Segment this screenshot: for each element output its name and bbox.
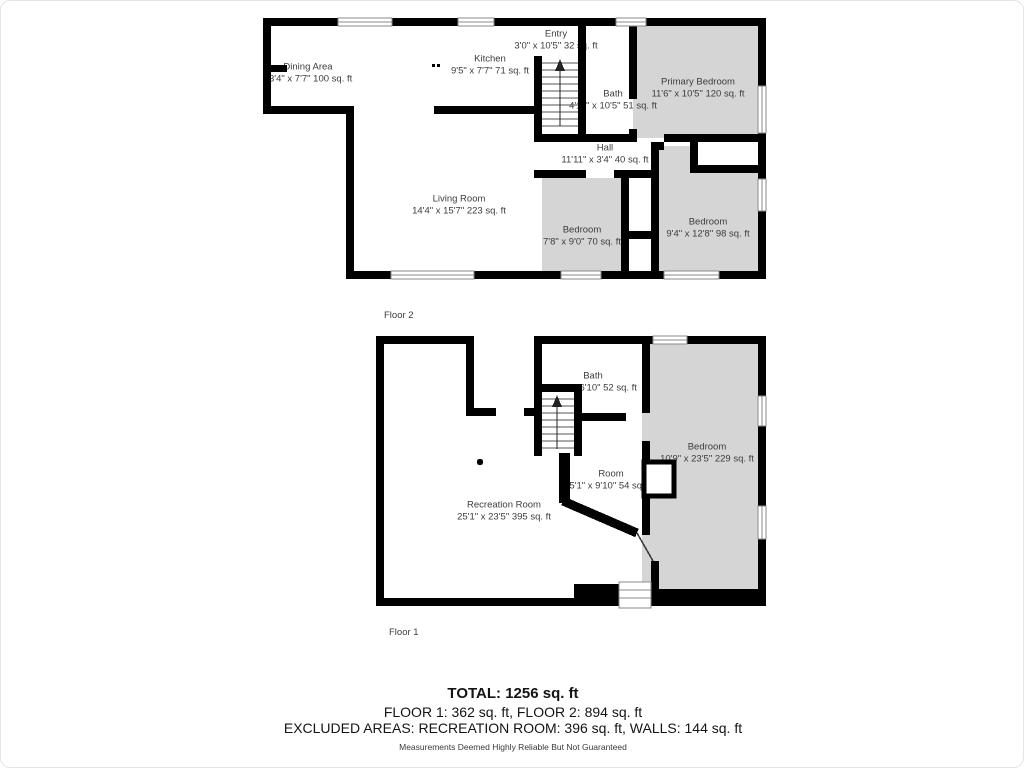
floorplan-page: Dining Area 13'4" x 7'7" 100 sq. ft Kitc… bbox=[0, 0, 1024, 768]
floor1-entry-steps bbox=[619, 582, 651, 608]
floor2-stairs-arrow-icon bbox=[555, 59, 565, 126]
floor1-diagonal-wall bbox=[563, 501, 653, 561]
support-post-dot bbox=[477, 459, 483, 465]
floor1-windows bbox=[653, 336, 766, 539]
floor1-closet bbox=[644, 462, 674, 496]
floor1-walls bbox=[376, 336, 766, 606]
floor2-windows bbox=[338, 18, 766, 279]
floor2-walls bbox=[263, 18, 766, 279]
wall-layer bbox=[1, 1, 1024, 768]
